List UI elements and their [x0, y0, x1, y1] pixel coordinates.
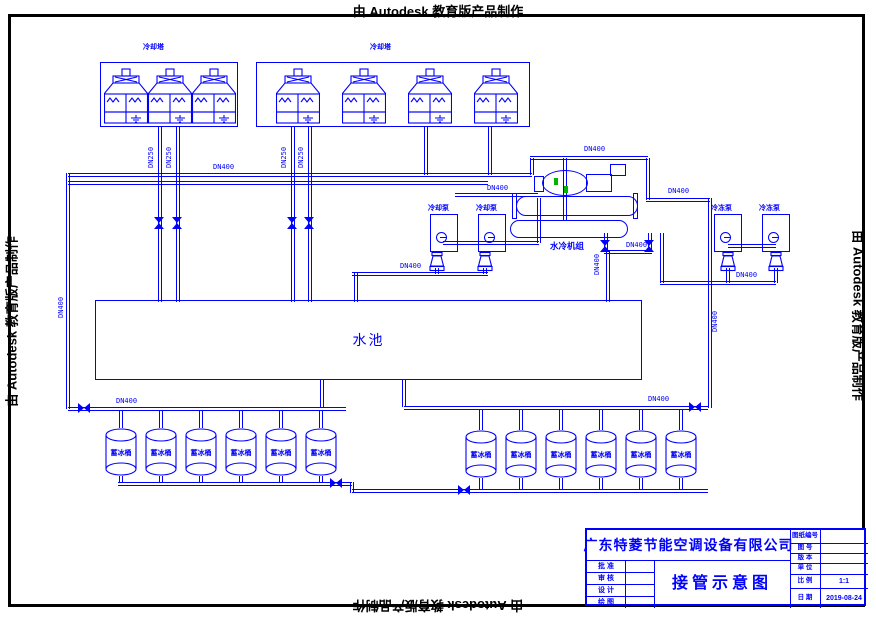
pipe-segment — [199, 411, 203, 428]
cooling-tower-icon — [342, 68, 386, 124]
cooling-pump-box-2 — [478, 214, 506, 252]
titleblock-field-label: 批 准 — [587, 560, 625, 572]
tower-group-1-label: 冷却塔 — [143, 44, 164, 51]
cooling-tower-icon — [192, 68, 236, 124]
pipe-segment — [559, 478, 563, 489]
titleblock-field-label: 设 计 — [587, 584, 625, 596]
svg-text:蓄冰桶: 蓄冰桶 — [591, 450, 612, 459]
svg-text:蓄冰桶: 蓄冰桶 — [151, 448, 172, 457]
storage-tank: 蓄冰桶 — [625, 430, 657, 478]
pipe-size-label: DN400 — [668, 188, 689, 195]
titleblock-field-value — [625, 572, 654, 584]
titleblock-field-value — [625, 596, 654, 608]
pipe-size-label: DN250 — [166, 147, 173, 168]
titleblock-field-value — [625, 584, 654, 596]
pipe-segment — [119, 476, 123, 482]
pipe-size-label: DN400 — [213, 164, 234, 171]
cooling-tower-icon — [408, 68, 452, 124]
pipe-segment — [639, 478, 643, 489]
pipe-segment — [291, 127, 295, 302]
cooling-tower-icon — [148, 68, 192, 124]
pipe-segment — [352, 272, 488, 276]
pipe-segment — [350, 482, 354, 493]
pipe-segment — [479, 410, 483, 430]
pipe-segment — [660, 281, 776, 285]
chiller-flange — [633, 193, 638, 219]
titleblock-field-value — [820, 553, 868, 563]
titleblock-field-label: 图 号 — [790, 543, 820, 553]
pipe-segment — [159, 476, 163, 482]
svg-text:蓄冰桶: 蓄冰桶 — [511, 450, 532, 459]
pipe-segment — [320, 380, 324, 408]
valve-icon — [689, 402, 701, 412]
titleblock-field-label: 版 本 — [790, 553, 820, 563]
pipe-segment — [479, 478, 483, 489]
svg-text:蓄冰桶: 蓄冰桶 — [671, 450, 692, 459]
storage-tank: 蓄冰桶 — [465, 430, 497, 478]
svg-text:蓄冰桶: 蓄冰桶 — [191, 448, 212, 457]
pipe-segment — [176, 127, 180, 302]
chiller-motor — [586, 174, 612, 192]
pump-icon — [477, 252, 493, 272]
pipe-segment — [599, 410, 603, 430]
pipe-size-label: DN250 — [281, 147, 288, 168]
pipe-segment — [519, 478, 523, 489]
pipe-segment — [158, 127, 162, 302]
pipe-segment — [646, 158, 650, 200]
pipe-segment — [239, 411, 243, 428]
titleblock-field-value: 1:1 — [820, 574, 868, 588]
pipe-segment — [519, 410, 523, 430]
svg-text:蓄冰桶: 蓄冰桶 — [631, 450, 652, 459]
svg-text:蓄冰桶: 蓄冰桶 — [111, 448, 132, 457]
titleblock-field-value: 2019-08-24 — [820, 588, 868, 608]
valve-icon — [78, 403, 90, 413]
cad-drawing-sheet: 由 Autodesk 教育版产品制作 由 Autodesk 教育版产品制作 由 … — [0, 0, 876, 617]
pump-label: 冷却泵 — [428, 205, 449, 212]
cooling-pump-box-1 — [430, 214, 458, 252]
pipe-segment — [118, 482, 352, 486]
pipe-size-label: DN250 — [148, 147, 155, 168]
chiller-shell-lower — [510, 220, 628, 238]
pipe-size-label: DN400 — [58, 297, 65, 318]
svg-text:蓄冰桶: 蓄冰桶 — [271, 448, 292, 457]
pipe-segment — [443, 241, 539, 245]
pipe-segment — [679, 478, 683, 489]
pump-icon — [720, 252, 736, 272]
pipe-segment — [424, 127, 428, 175]
storage-tank: 蓄冰桶 — [305, 428, 337, 476]
pipe-size-label: DN250 — [298, 147, 305, 168]
pipe-segment — [470, 489, 708, 493]
pipe-size-label: DN400 — [712, 311, 719, 332]
titleblock-field-label: 日 期 — [790, 588, 820, 608]
highlight-mark — [564, 186, 568, 193]
pipe-segment — [68, 173, 532, 177]
pipe-segment — [606, 250, 610, 302]
pump-icon — [429, 252, 445, 272]
cooling-tower-icon — [474, 68, 518, 124]
pool-label: 水池 — [353, 330, 385, 350]
drawing-title: 接管示意图 — [654, 560, 790, 608]
pipe-segment — [279, 476, 283, 482]
pipe-segment — [66, 173, 70, 409]
pump-label: 冷冻泵 — [759, 205, 780, 212]
svg-text:蓄冰桶: 蓄冰桶 — [551, 450, 572, 459]
svg-text:蓄冰桶: 蓄冰桶 — [231, 448, 252, 457]
valve-icon — [458, 485, 470, 495]
chiller-shell-upper — [516, 196, 638, 216]
svg-text:蓄冰桶: 蓄冰桶 — [311, 448, 332, 457]
pump-label: 冷却泵 — [476, 205, 497, 212]
piping-schematic: 冷却塔 冷却塔 水池 水冷机组 冷却泵 冷却泵 冷冻泵 冷冻泵 蓄冰桶蓄冰桶蓄冰… — [0, 0, 876, 617]
storage-tank: 蓄冰桶 — [185, 428, 217, 476]
valve-icon — [600, 240, 610, 252]
company-name: 广东特菱节能空调设备有限公司 — [587, 530, 790, 560]
pipe-segment — [308, 127, 312, 302]
chiller-label: 水冷机组 — [550, 242, 584, 251]
pipe-segment — [639, 410, 643, 430]
titleblock-field-label: 单 位 — [790, 563, 820, 574]
storage-tank: 蓄冰桶 — [545, 430, 577, 478]
chiller-detail — [534, 176, 544, 192]
pipe-size-label: DN400 — [736, 272, 757, 279]
pipe-segment — [404, 406, 708, 410]
svg-text:蓄冰桶: 蓄冰桶 — [471, 450, 492, 459]
pipe-size-label: DN400 — [400, 263, 421, 270]
valve-icon — [172, 217, 182, 229]
pump-icon — [768, 252, 784, 272]
pipe-segment — [728, 244, 776, 248]
water-pool: 水池 — [95, 300, 642, 380]
pump-label: 冷冻泵 — [711, 205, 732, 212]
titleblock-field-value — [820, 543, 868, 553]
pipe-segment — [488, 127, 492, 175]
valve-icon — [304, 217, 314, 229]
pipe-size-label: DN400 — [626, 242, 647, 249]
titleblock-field-label: 绘 图 — [587, 596, 625, 608]
pipe-segment — [319, 476, 323, 482]
highlight-mark — [554, 178, 558, 185]
titleblock-field-value — [820, 563, 868, 574]
pipe-segment — [530, 156, 648, 160]
pipe-size-label: DN400 — [594, 254, 601, 275]
pipe-segment — [660, 233, 664, 283]
pipe-segment — [68, 181, 488, 185]
pipe-segment — [708, 198, 712, 408]
pipe-segment — [319, 411, 323, 428]
titleblock-field-label: 比 例 — [790, 574, 820, 588]
titleblock-field-label: 审 核 — [587, 572, 625, 584]
cooling-tower-icon — [104, 68, 148, 124]
titleblock-field-label: 图纸编号 — [790, 530, 820, 543]
pipe-segment — [559, 410, 563, 430]
pipe-size-label: DN400 — [116, 398, 137, 405]
storage-tank: 蓄冰桶 — [265, 428, 297, 476]
pipe-segment — [679, 410, 683, 430]
title-block: 广东特菱节能空调设备有限公司接管示意图批 准审 核设 计绘 图图纸编号图 号版 … — [585, 528, 866, 606]
pipe-segment — [239, 476, 243, 482]
cooling-tower-icon — [276, 68, 320, 124]
storage-tank: 蓄冰桶 — [585, 430, 617, 478]
pipe-segment — [199, 476, 203, 482]
pipe-segment — [159, 411, 163, 428]
pipe-segment — [68, 407, 346, 411]
pipe-segment — [599, 478, 603, 489]
pipe-segment — [352, 489, 470, 493]
valve-icon — [287, 217, 297, 229]
pipe-segment — [279, 411, 283, 428]
pipe-segment — [537, 198, 541, 243]
pipe-segment — [354, 272, 358, 302]
storage-tank: 蓄冰桶 — [225, 428, 257, 476]
pipe-size-label: DN400 — [487, 185, 508, 192]
pipe-segment — [402, 380, 406, 407]
titleblock-field-value — [820, 530, 868, 543]
storage-tank: 蓄冰桶 — [105, 428, 137, 476]
pipe-segment — [530, 158, 534, 175]
pipe-segment — [646, 198, 710, 202]
storage-tank: 蓄冰桶 — [145, 428, 177, 476]
chiller-detail — [610, 164, 626, 176]
storage-tank: 蓄冰桶 — [505, 430, 537, 478]
storage-tank: 蓄冰桶 — [665, 430, 697, 478]
titleblock-field-value — [625, 560, 654, 572]
valve-icon — [154, 217, 164, 229]
pipe-size-label: DN400 — [648, 396, 669, 403]
tower-group-2-label: 冷却塔 — [370, 44, 391, 51]
pipe-segment — [119, 411, 123, 428]
valve-icon — [330, 478, 342, 488]
pipe-size-label: DN400 — [584, 146, 605, 153]
pipe-segment — [455, 193, 538, 197]
